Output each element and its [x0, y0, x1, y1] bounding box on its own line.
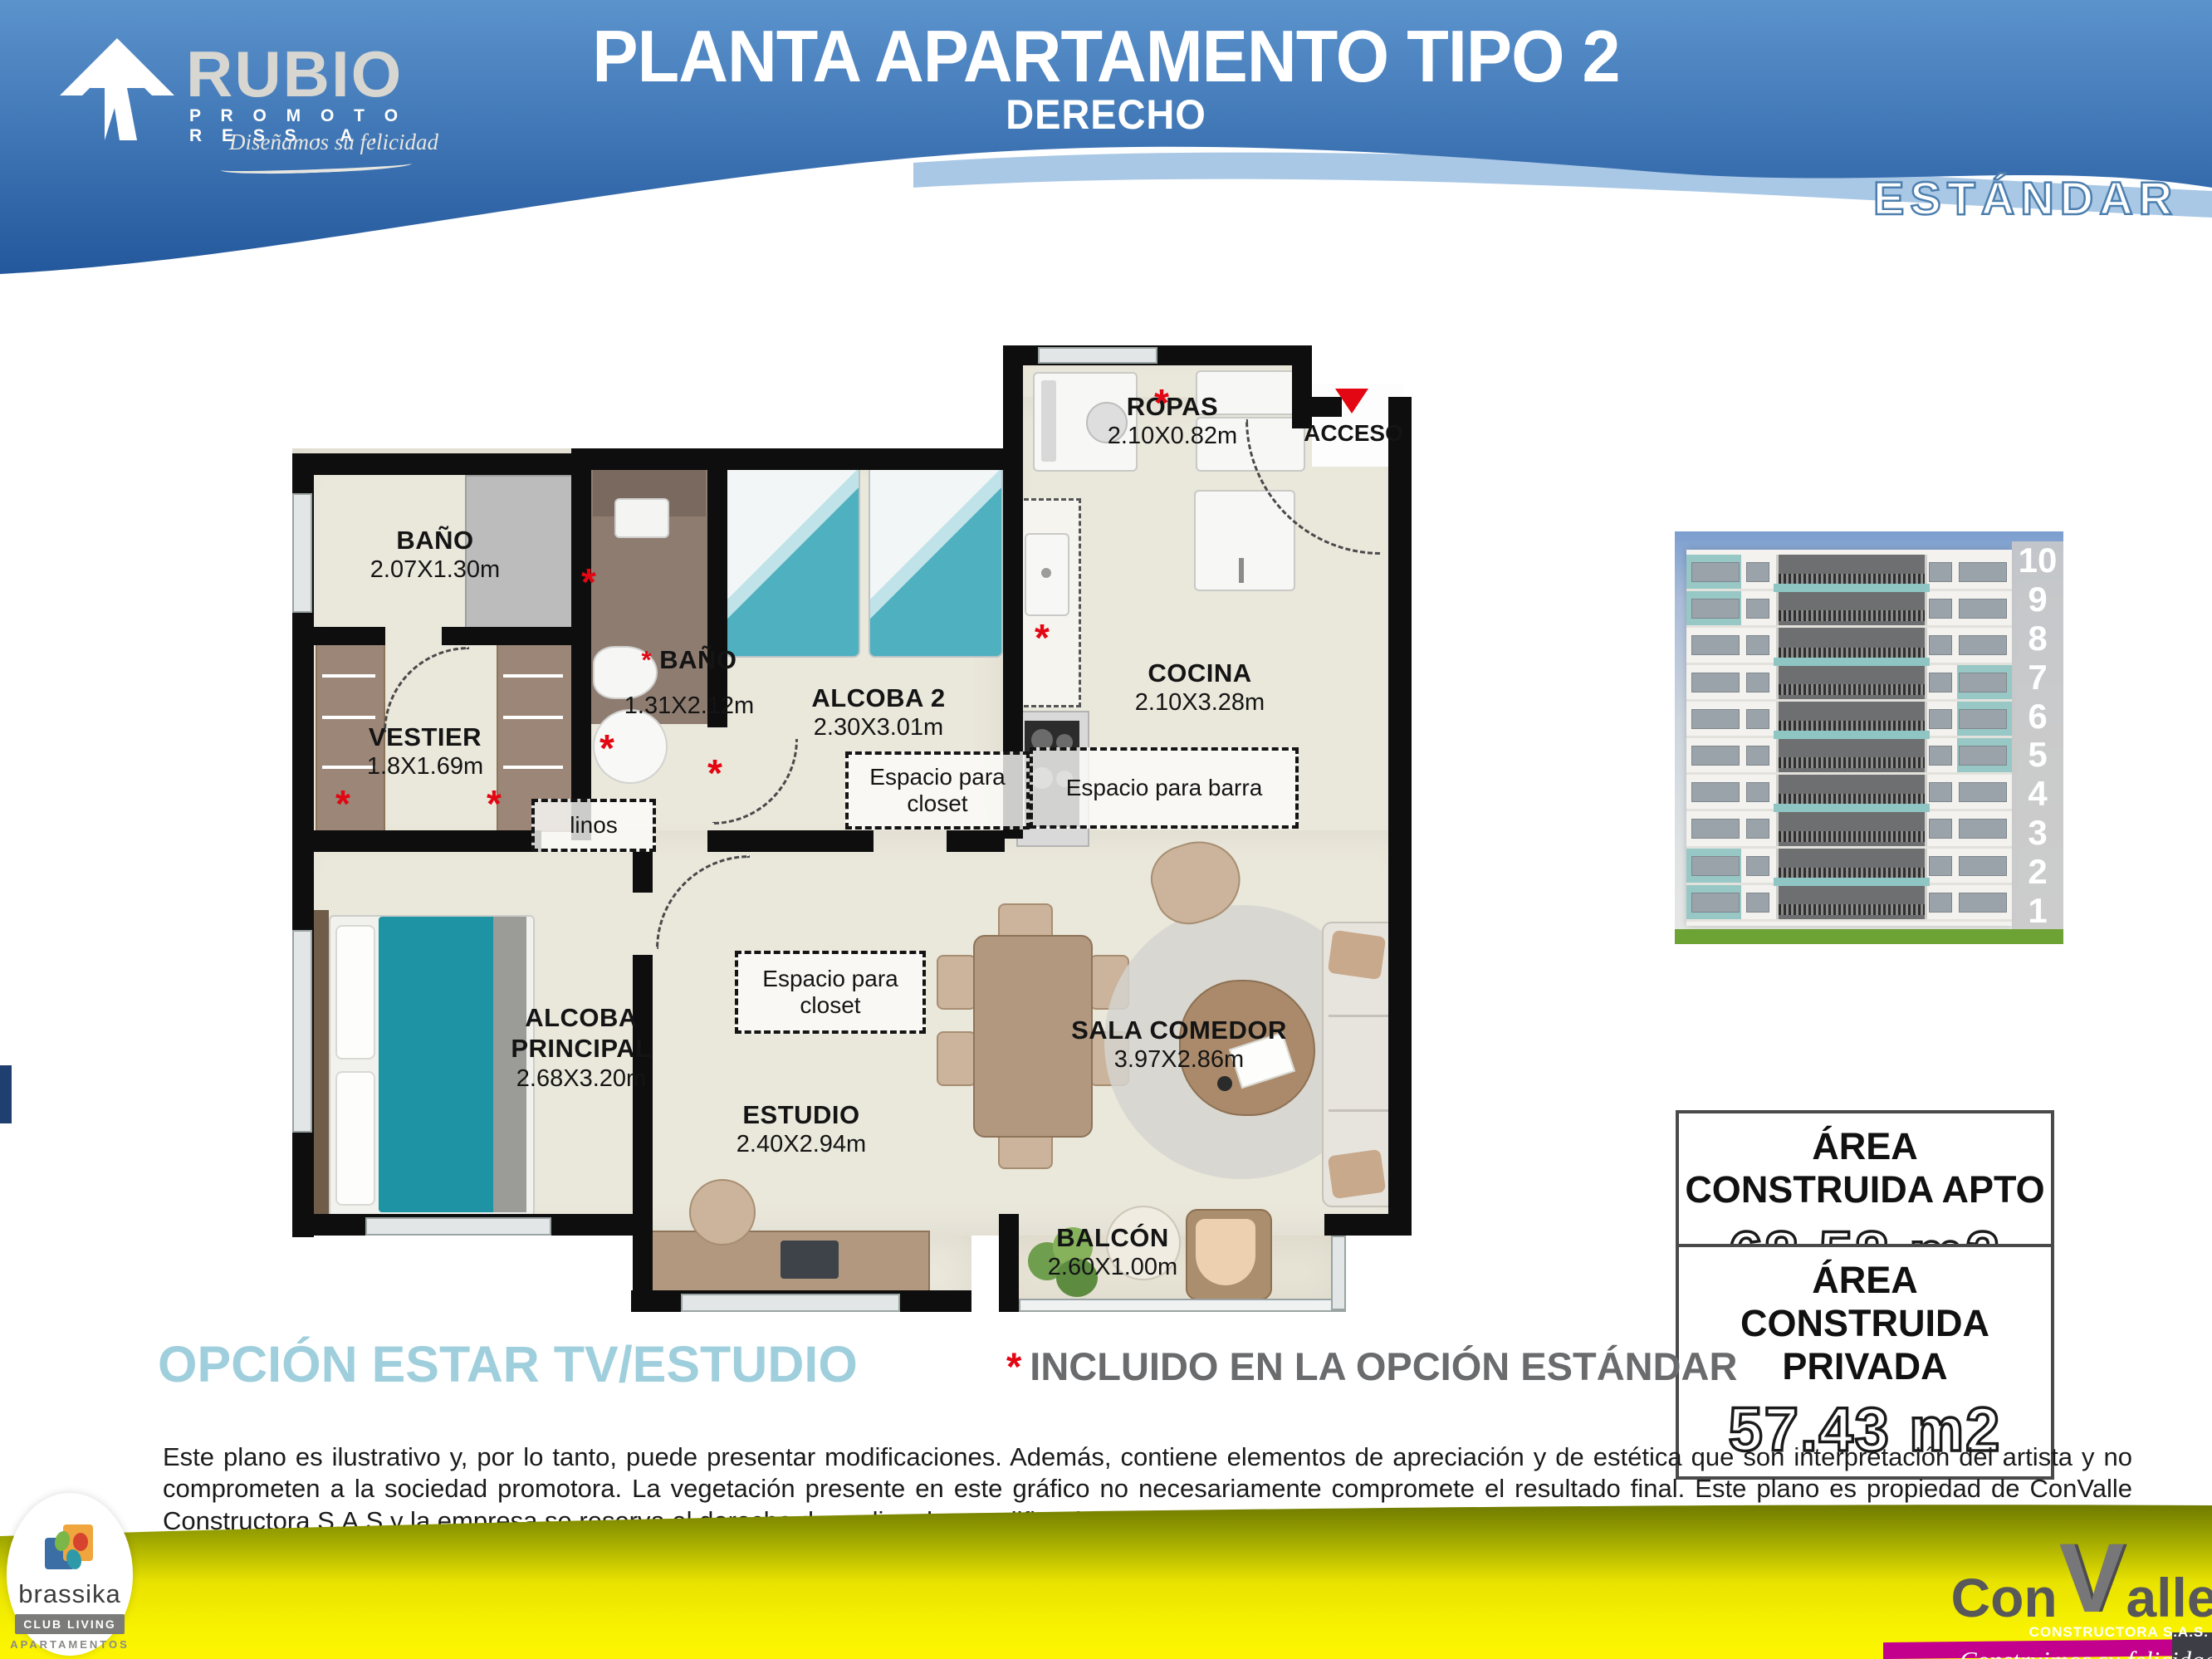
room-label-ropas: ROPAS2.10X0.82m: [1108, 374, 1237, 467]
brassika-name: brassika: [7, 1579, 133, 1609]
dining-chair: [937, 1031, 976, 1086]
floor-number: 4: [2028, 776, 2047, 811]
brand-name: RUBIO: [186, 37, 403, 112]
floor-number: 9: [2028, 582, 2047, 617]
access-label: ACCESO: [1285, 420, 1422, 447]
asterisk-marker: *: [581, 563, 596, 601]
closet-zone: Espacio para closet: [845, 751, 1030, 829]
title-sub: DERECHO: [592, 93, 1619, 137]
single-bed: [869, 462, 1003, 658]
brassika-subtitle: APARTAMENTOS: [7, 1638, 133, 1651]
convalle-logo: Con V alle CONSTRUCTORA S.A.S. Construim…: [1960, 1534, 2209, 1659]
grass: [1675, 929, 2063, 944]
building-floor-row: [1686, 849, 2012, 885]
convalle-name-part: Con: [1950, 1573, 2057, 1622]
floor-number: 3: [2028, 815, 2047, 850]
asterisk-marker: *: [1154, 384, 1169, 422]
floor-number: 7: [2028, 660, 2047, 695]
floor-number: 6: [2028, 699, 2047, 734]
room-label-bano2: * BAÑO 1.31X2.12m: [624, 628, 754, 737]
footer-band: [0, 1493, 2212, 1659]
building-floor-row: [1686, 811, 2012, 848]
convalle-v-icon: V: [2059, 1534, 2125, 1622]
linen-zone: linos: [531, 799, 656, 852]
floor-number: 2: [2028, 854, 2047, 889]
desk-chair: [689, 1179, 756, 1245]
room-label-cocina: COCINA2.10X3.28m: [1135, 641, 1265, 734]
area-title: ÁREA CONSTRUIDA APTO: [1684, 1125, 2046, 1211]
convalle-tagline: Construimos su felicidad: [1960, 1646, 2209, 1659]
building-floor-row: [1686, 591, 2012, 628]
room-label-alcoba2: ALCOBA 22.30X3.01m: [811, 666, 945, 759]
room-label-sala-comedor: SALA COMEDOR3.97X2.86m: [1071, 998, 1287, 1091]
room-label-bano1: BAÑO2.07X1.30m: [370, 508, 500, 601]
area-title: ÁREA CONSTRUIDA PRIVADA: [1728, 1259, 2002, 1387]
room-label-balcon: BALCÓN2.60X1.00m: [1048, 1206, 1177, 1299]
floor-number: 10: [2019, 543, 2058, 578]
building-facade: [1686, 550, 2012, 926]
building-floor-row: [1686, 555, 2012, 591]
page-title: PLANTA APARTAMENTO TIPO 2 DERECHO: [592, 20, 1619, 137]
building-elevation: 10987654321: [1675, 531, 2063, 944]
floor-number-strip: 10987654321: [2012, 541, 2063, 930]
variant-label: ESTÁNDAR: [1873, 171, 2178, 225]
bed-headboard: [314, 910, 329, 1219]
brassika-logo: brassika CLUB LIVING APARTAMENTOS: [7, 1493, 133, 1656]
convalle-name-part: alle: [2126, 1573, 2212, 1622]
building-floor-row: [1686, 775, 2012, 811]
rubio-house-arrow-icon: [55, 18, 179, 143]
floor-number: 5: [2028, 737, 2047, 772]
floor-number: 1: [2028, 893, 2047, 928]
room-label-estudio: ESTUDIO2.40X2.94m: [737, 1083, 866, 1176]
kitchen-sink: [1025, 533, 1069, 616]
flyer-page: RUBIO P R O M O T O R E S S . A . Diseña…: [0, 0, 2212, 1659]
asterisk-marker: *: [1035, 619, 1050, 657]
building-floor-row: [1686, 628, 2012, 664]
room-label-alcoba-principal: ALCOBA PRINCIPAL2.68X3.20m: [477, 986, 685, 1110]
bath-sink: [614, 498, 669, 538]
building-floor-row: [1686, 702, 2012, 738]
brassika-logo-icon: [45, 1524, 95, 1573]
brand-tagline: Diseñamos su felicidad: [229, 130, 438, 155]
building-floor-row: [1686, 665, 2012, 702]
asterisk-marker: *: [1006, 1344, 1021, 1388]
edge-accent: [0, 1065, 12, 1123]
asterisk-marker: *: [335, 785, 350, 823]
building-floor-row: [1686, 885, 2012, 922]
balcony-chair: [1186, 1209, 1272, 1300]
building-floor-row: [1686, 738, 2012, 775]
access-arrow-icon: [1335, 389, 1368, 414]
room-label-vestier: VESTIER1.8X1.69m: [367, 705, 483, 798]
asterisk-marker: *: [707, 754, 722, 792]
brassika-badge: CLUB LIVING: [15, 1614, 124, 1634]
closet-zone: Espacio para closet: [735, 951, 926, 1034]
sofa: [1322, 922, 1397, 1207]
asterisk-marker: *: [599, 729, 614, 767]
laptop: [781, 1241, 839, 1279]
bar-zone: Espacio para barra: [1030, 747, 1299, 829]
dining-chair: [937, 955, 976, 1010]
floor-number: 8: [2028, 621, 2047, 656]
included-note: *INCLUIDO EN LA OPCIÓN ESTÁNDAR: [1006, 1343, 1737, 1389]
asterisk-marker: *: [487, 785, 502, 823]
option-label: OPCIÓN ESTAR TV/ESTUDIO: [158, 1335, 858, 1393]
title-main: PLANTA APARTAMENTO TIPO 2: [592, 20, 1619, 93]
